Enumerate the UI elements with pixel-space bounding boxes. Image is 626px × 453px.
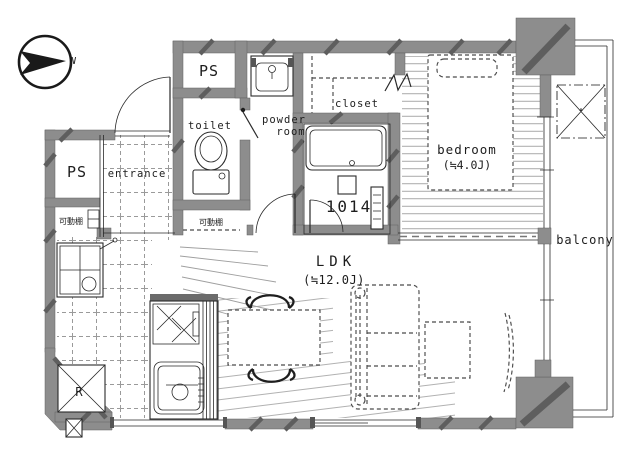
wall-bath-top: [293, 113, 398, 123]
compass-north-icon: N: [19, 36, 77, 88]
ldk-balcony-window: [540, 244, 554, 360]
label-powder-1: powder: [262, 114, 306, 126]
label-entrance: entrance: [108, 168, 167, 180]
label-ps-top: PS: [199, 62, 219, 80]
wall-entrance-pier: [97, 228, 111, 239]
washbasin: [251, 56, 293, 96]
entrance-tile-floor: [103, 135, 175, 240]
wall-ps-powder-divider: [235, 41, 247, 98]
label-ps-left: PS: [67, 163, 87, 181]
wall-closet-pier: [395, 53, 405, 75]
wall-toilet-right-a: [240, 98, 250, 110]
wall-bottom-a: [225, 419, 313, 429]
label-bedroom-size: (≒4.0J): [443, 158, 491, 172]
balcony-hatch-icon: [557, 85, 605, 138]
label-ldk: LDK: [316, 254, 356, 270]
entrance-door: [115, 77, 170, 133]
label-closet: closet: [335, 98, 379, 110]
movable-shelf-box: [88, 210, 99, 228]
floor-plan: N: [0, 0, 626, 453]
wall-toilet-right-b: [240, 140, 250, 210]
refrigerator: R: [58, 365, 105, 412]
pipe-column-icon: [66, 419, 82, 437]
label-powder-2: room: [276, 126, 305, 138]
wall-bottom-b: [418, 418, 516, 429]
wall-top: [173, 41, 516, 53]
wall-pier-bedroom-window: [540, 75, 551, 117]
dining-table: [228, 310, 320, 365]
coffee-table: [425, 322, 470, 378]
label-bath-unit: 1014: [326, 197, 373, 216]
wall-pier-ldk-window: [535, 360, 551, 377]
sofa: [351, 285, 419, 409]
wall-powder-bottom-a: [247, 225, 253, 235]
entrance-side-wall-line: [100, 135, 104, 237]
label-shelf-left: 可動棚: [59, 216, 83, 226]
bathtub: [304, 124, 390, 234]
toilet-door: [241, 108, 258, 138]
balcony-parapet: [573, 40, 613, 417]
tv-board: [504, 313, 513, 392]
refrigerator-label: R: [75, 385, 83, 399]
label-ldk-size: (≒12.0J): [303, 273, 365, 287]
compass-north-label: N: [69, 56, 77, 67]
ldk-south-window: [310, 417, 421, 428]
wall-toilet-bottom: [173, 200, 250, 210]
label-balcony: balcony: [556, 233, 614, 247]
toilet-fixture: [193, 132, 229, 194]
kitchen-counter: [150, 294, 218, 419]
wall-ps-left-bottom: [45, 198, 100, 207]
label-toilet: toilet: [188, 120, 232, 132]
floor-plan-drawing: N: [0, 0, 626, 453]
bedroom-ldk-sliding-door: [398, 233, 538, 240]
label-shelf-hall: 可動棚: [199, 217, 223, 227]
powder-room-door: [256, 194, 295, 233]
label-bedroom: bedroom: [437, 142, 497, 157]
wall-balcony-divider: [538, 228, 551, 244]
wall-entrance-left: [45, 130, 115, 140]
